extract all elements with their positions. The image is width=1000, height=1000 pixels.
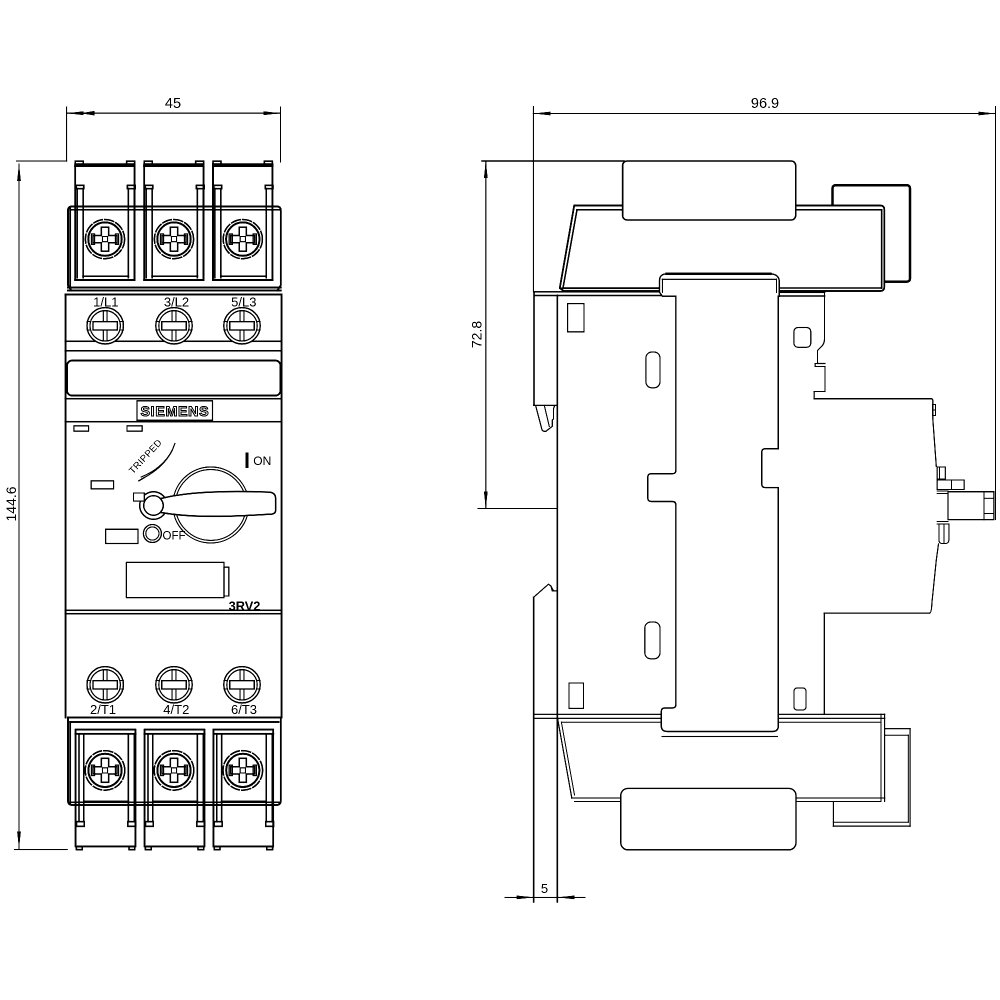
svg-text:45: 45	[165, 96, 181, 112]
svg-text:144.6: 144.6	[3, 486, 19, 521]
svg-text:96.9: 96.9	[751, 96, 779, 112]
svg-text:72.8: 72.8	[469, 321, 485, 348]
svg-text:2/T1: 2/T1	[90, 702, 116, 717]
svg-text:4/T2: 4/T2	[163, 702, 189, 717]
svg-text:3RV2: 3RV2	[229, 599, 261, 614]
svg-text:6/T3: 6/T3	[231, 702, 257, 717]
svg-text:OFF: OFF	[163, 530, 186, 542]
svg-text:ON: ON	[253, 454, 271, 468]
svg-text:SIEMENS: SIEMENS	[141, 404, 210, 420]
svg-text:5: 5	[541, 881, 548, 896]
